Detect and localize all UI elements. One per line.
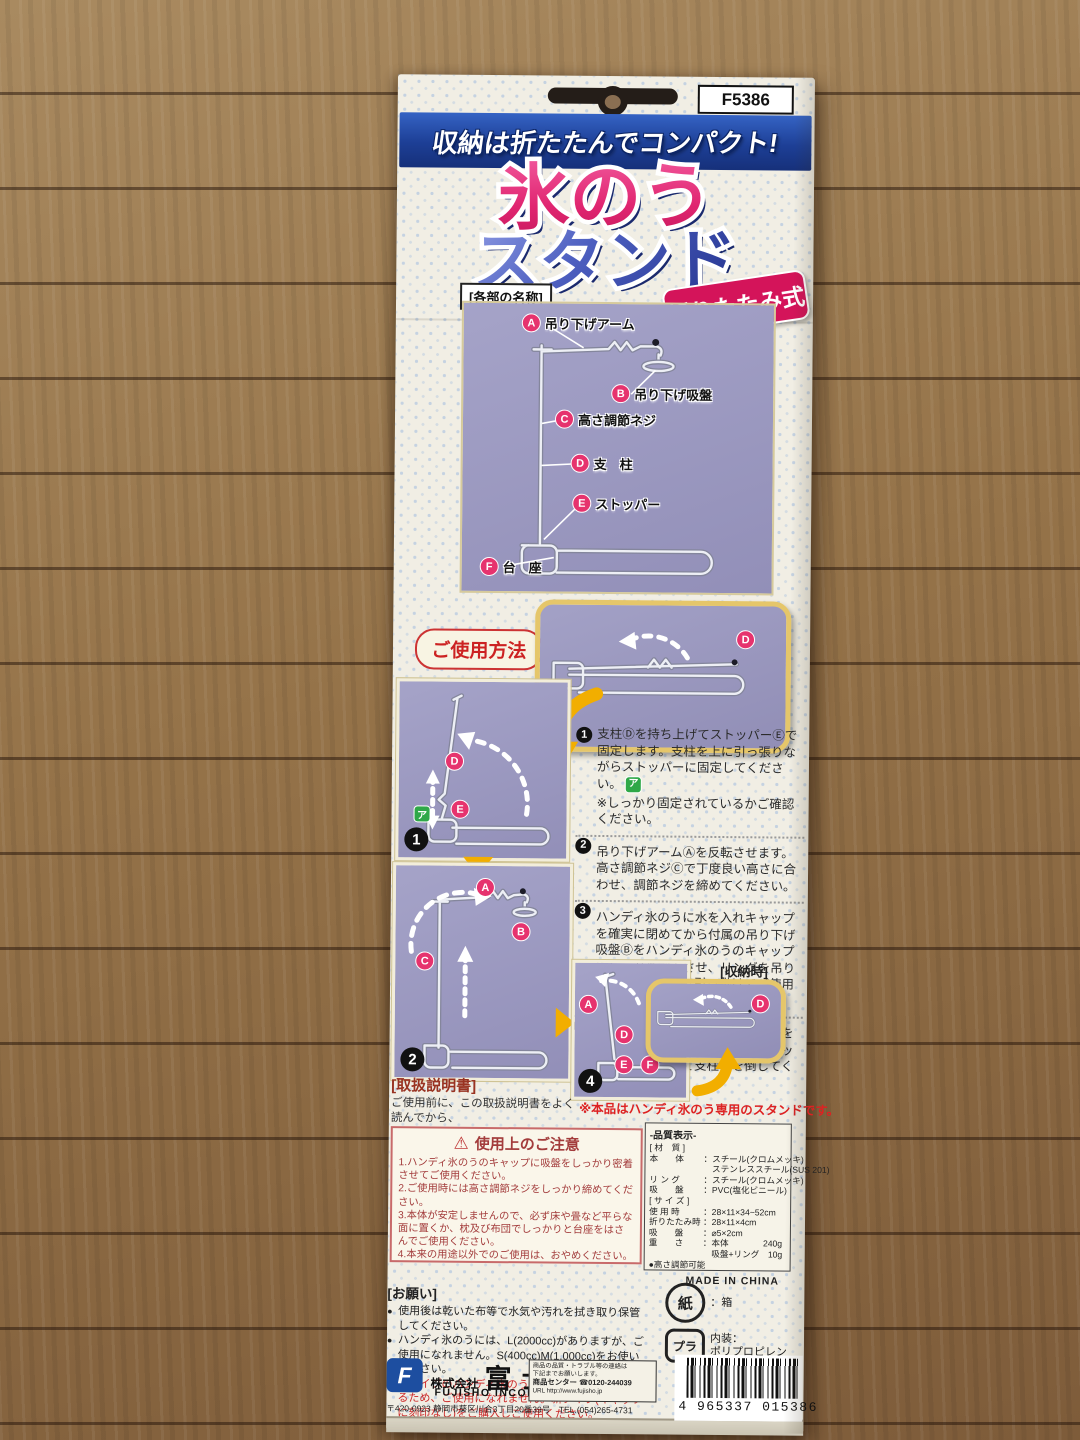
step4-letter-a: A: [579, 995, 598, 1014]
paper-recycle-row: 紙 ：箱: [665, 1283, 787, 1324]
product-code-label: F5386: [698, 85, 794, 115]
part-letter-d: D: [571, 454, 590, 473]
company-address: 〒420-0923 静岡市葵区川合3丁目20番39号 TEL.(054)265-…: [386, 1402, 632, 1416]
step4-letter-d: D: [615, 1025, 634, 1044]
quality-key: 使 用 時: [649, 1206, 703, 1217]
part-letter-a: A: [522, 313, 541, 332]
part-label-suction: B 吊り下げ吸盤: [611, 384, 712, 404]
quality-key: [649, 1164, 703, 1175]
step-number: 1: [576, 727, 592, 743]
request-heading: [お願い]: [387, 1282, 649, 1304]
stored-state-label: [収納時]: [720, 961, 768, 980]
usage-step: 1支柱Ⓓを持ち上げてストッパーⒺで固定します。支柱を上に引っ張りながらストッパー…: [575, 726, 805, 830]
quality-rows: [ 材 質 ] 本 体 ：スチール(クロムメッキ) ステンレススチール(SUS …: [649, 1142, 787, 1270]
usage-step: 2吊り下げアームⒶを反転させます。高さ調節ネジⒸで丁度良い高さに合わせ、調節ネジ…: [575, 834, 805, 894]
step-text: 吊り下げアームⒶを反転させます。高さ調節ネジⒸで丁度良い高さに合わせ、調節ネジを…: [596, 845, 796, 894]
contact-box: 商品の品質・トラブル等の連絡は 下記までお願いします。 商品センター ☎0120…: [528, 1359, 656, 1402]
step1-letter-d: D: [445, 752, 464, 771]
step-number: 3: [575, 903, 591, 919]
quality-key: [ サ イ ズ ]: [649, 1195, 703, 1206]
step4-number: 4: [578, 1069, 602, 1093]
barcode-digits: 4 965337 015386: [678, 1399, 798, 1415]
paper-recycle-icon: 紙: [665, 1283, 705, 1323]
request-item-1: 使用後は乾いた布等で水気や汚れを拭き取り保管してください。: [387, 1304, 649, 1335]
quality-value: ：本体 240g: [703, 1238, 782, 1249]
quality-value: ：28×11×4cm: [703, 1217, 756, 1228]
stored-letter-d: D: [751, 994, 770, 1013]
warning-icon: ⚠: [453, 1135, 468, 1152]
step1-letter-e: E: [451, 800, 470, 819]
step4-letter-e: E: [614, 1055, 633, 1074]
contact-url: URL http://www.fujisho.jp: [532, 1387, 652, 1396]
stand-diagram-drawing: [462, 303, 775, 594]
quality-value: ：PVC(塩化ビニール): [703, 1185, 787, 1196]
yellow-arrow-up: [687, 1047, 741, 1097]
part-letter-f: F: [480, 557, 499, 576]
part-label-screw: C 高さ調節ネジ: [555, 410, 656, 430]
quality-key: 本 体: [650, 1153, 704, 1164]
caution-item: 3.本体が安定しませんので、必ず床や畳など平らな面に置くか、枕及び布団でしっかり…: [398, 1209, 634, 1251]
quality-key: 折りたたみ時: [649, 1217, 703, 1228]
step1-number: 1: [404, 827, 428, 851]
quality-key: 重 さ: [649, 1238, 703, 1249]
quality-title: -品質表示-: [650, 1126, 787, 1142]
caution-item: 2.ご使用時には高さ調節ネジをしっかり締めてください。: [398, 1183, 634, 1211]
quality-key: [ 材 質 ]: [650, 1142, 704, 1153]
exclusive-use-note: ※本品はハンディ氷のう専用のスタンドです。: [579, 1098, 805, 1119]
caution-item: 4.本来の用途以外でのご使用は、おやめください。: [398, 1249, 634, 1264]
product-box: F5386 収納は折たたんでコンパクト! 氷のう氷のう スタンドスタンド 折りた…: [386, 74, 815, 1434]
barcode-bars: [686, 1358, 798, 1399]
inset-top-letter-d: D: [736, 630, 755, 649]
step-marker-icon: ア: [625, 776, 642, 793]
part-letter-b: B: [611, 384, 630, 403]
quality-value: ：28×11×34~52cm: [703, 1206, 776, 1217]
step2-letter-c: C: [415, 951, 434, 970]
banner-text: 収納は折たたんでコンパクト!: [430, 123, 781, 160]
caution-heading: ⚠ 使用上のご注意: [399, 1132, 635, 1155]
step-note: ※しっかり固定されているかご確認ください。: [596, 795, 804, 830]
usage-heading: ご使用方法: [415, 628, 543, 670]
step1-marker-a: ア: [413, 805, 430, 822]
barcode: 4 965337 015386: [674, 1355, 803, 1422]
quality-value: ：⌀5×2cm: [703, 1228, 743, 1239]
caution-item: 1.ハンディ氷のうのキャップに吸盤をしっかり密着させてご使用ください。: [398, 1156, 634, 1184]
quality-key: [649, 1248, 703, 1259]
part-letter-e: E: [572, 494, 591, 513]
part-label-base: F 台 座: [480, 557, 542, 577]
part-letter-c: C: [555, 410, 574, 429]
paper-recycle-label: ：箱: [710, 1296, 732, 1309]
step2-number: 2: [400, 1047, 424, 1071]
part-label-pole: D 支 柱: [571, 454, 633, 474]
quality-key: 吸 盤: [649, 1185, 703, 1196]
step1-image: D E ア 1: [395, 678, 571, 862]
parts-diagram-panel: A 吊り下げアーム B 吊り下げ吸盤 C 高さ調節ネジ D 支 柱 E ストッパ…: [459, 301, 776, 596]
quality-box: -品質表示- [ 材 質 ] 本 体 ：スチール(クロムメッキ) ステンレススチ…: [644, 1122, 792, 1271]
quality-value: 吸盤+リング 10g: [703, 1249, 783, 1260]
quality-key: ●高さ調節可能: [649, 1259, 706, 1270]
step2-letter-a: A: [476, 878, 495, 897]
caution-items: 1.ハンディ氷のうのキャップに吸盤をしっかり密着させてご使用ください。2.ご使用…: [398, 1156, 635, 1264]
part-label-stopper: E ストッパー: [572, 494, 660, 514]
caution-box: ⚠ 使用上のご注意 1.ハンディ氷のうのキャップに吸盤をしっかり密着させてご使用…: [390, 1126, 643, 1264]
quality-row: ●高さ調節可能: [649, 1259, 786, 1271]
step2-letter-b: B: [511, 922, 530, 941]
manual-heading: [取扱説明書]: [391, 1074, 476, 1096]
hang-hole-inner: [605, 95, 621, 109]
step-number: 2: [575, 837, 591, 853]
part-label-arm: A 吊り下げアーム: [522, 313, 635, 333]
step2-image: A B C 2: [391, 862, 573, 1082]
fujisho-logo: F: [387, 1358, 423, 1392]
step1-drawing: [398, 681, 561, 852]
stored-stand-drawing: [651, 983, 772, 1048]
